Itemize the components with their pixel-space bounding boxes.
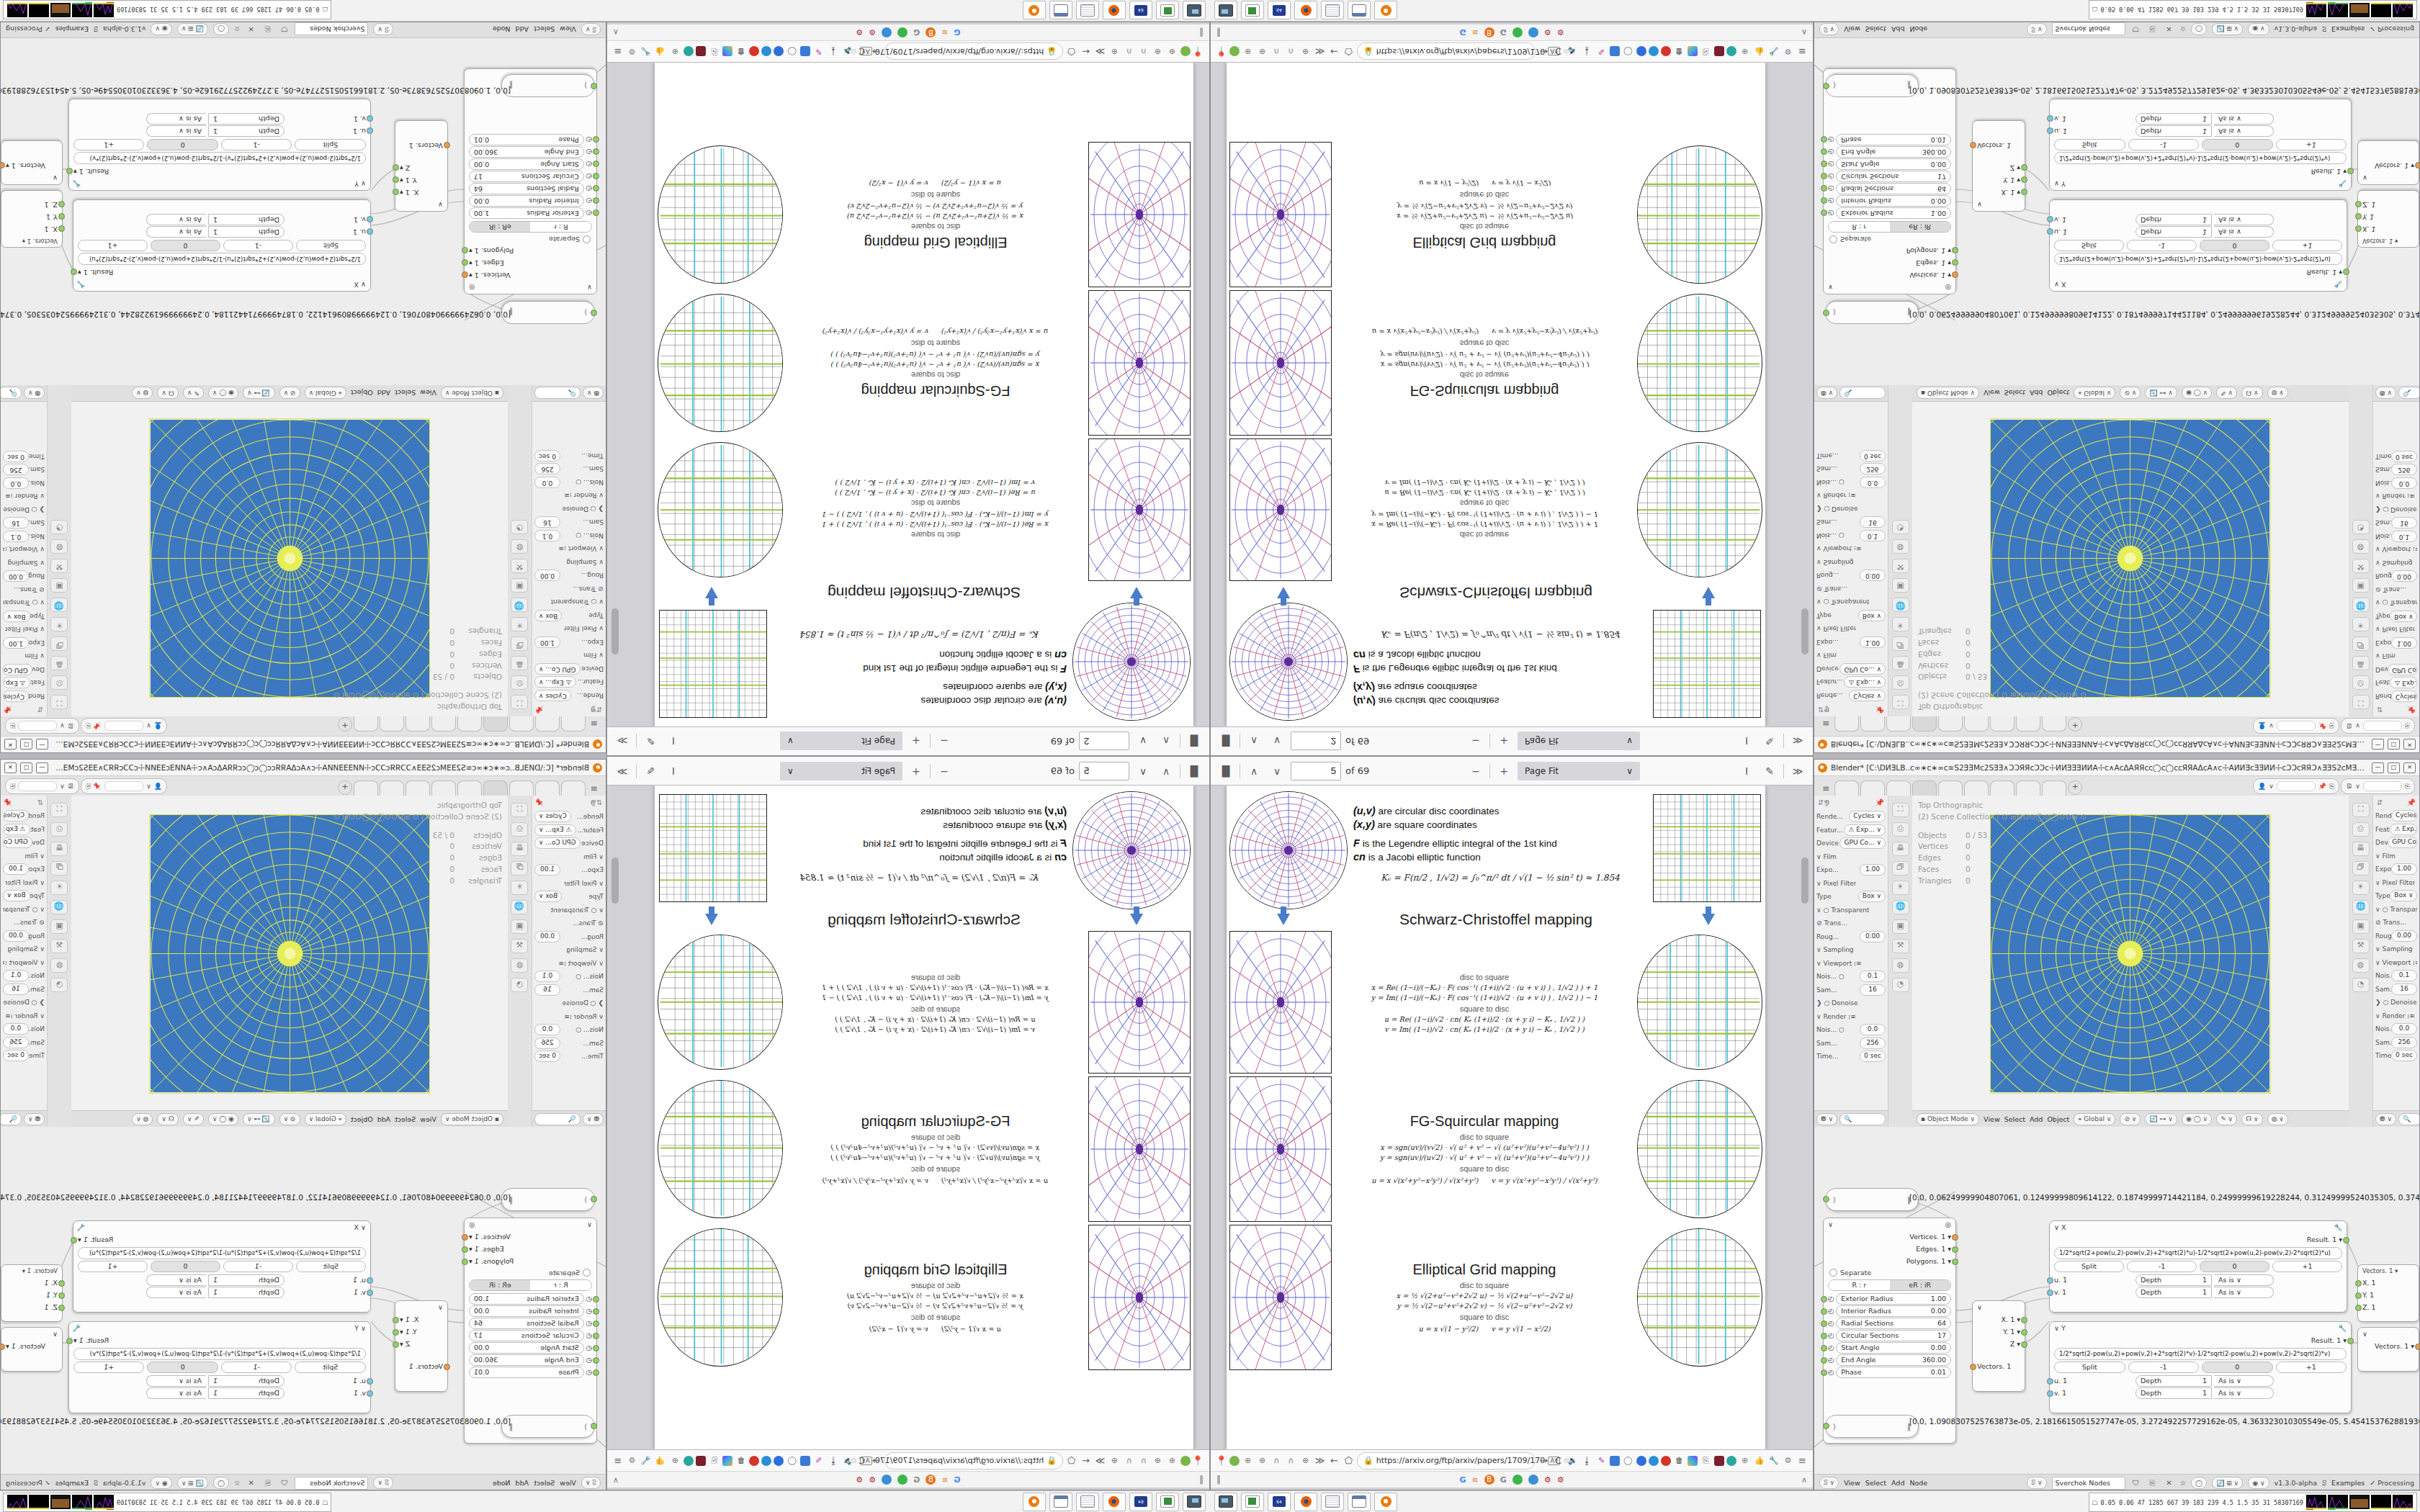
blender-titlebar[interactable]: Blender* [C:\DИƎLB..ᴄ∞∗ᴄ∗∞ᴄ≊S2ƎƎMᴄ2SƎƎ∧Ɔ… bbox=[1, 736, 606, 752]
prop-row[interactable]: Sam...256 bbox=[1, 1036, 47, 1050]
node-input-row[interactable]: v. 1Depth1As is ∨ bbox=[2050, 113, 2351, 125]
prop-row[interactable]: ∨ Pixel Filter bbox=[532, 877, 606, 891]
prop-row[interactable]: Roug...0.00 bbox=[2373, 930, 2419, 943]
prop-row[interactable]: Featur...⚠ Exp... ∨ bbox=[532, 675, 606, 689]
node-row[interactable]: Y. 1 ▾ bbox=[395, 1326, 447, 1338]
snap-toggle[interactable]: ◯ bbox=[213, 1477, 229, 1489]
viewlayer-selector[interactable]: 🖻∨⎘ bbox=[2341, 778, 2415, 794]
prop-row[interactable]: ∨ Viewport ⁝≡ bbox=[1, 543, 47, 557]
stethoscope-node-collapsed[interactable]: ⟩‖ bbox=[1825, 301, 1919, 324]
pin-icon[interactable]: 📌 bbox=[94, 783, 102, 790]
separate-radio[interactable]: Separate bbox=[1824, 1267, 1955, 1278]
socket-green[interactable] bbox=[1821, 1369, 1827, 1376]
tab-tool-icon[interactable]: ⛶ bbox=[511, 803, 529, 817]
viewlayer-selector[interactable]: 🖻∨⎘ bbox=[2341, 718, 2415, 734]
tab-output-icon[interactable]: 🖶 bbox=[51, 656, 68, 670]
tab-viewlayer-icon[interactable]: 🗇 bbox=[1892, 636, 1909, 651]
prop-row[interactable]: ∨ Render ⁝≡ bbox=[1814, 489, 1888, 503]
vector-out-node[interactable]: Vectors. 1 ▾ X. 1 Y. 1 Z. 1 bbox=[1, 1264, 63, 1322]
formula-node-y[interactable]: ∨ Y🔧 Result. 1 ▾ 1/2*sqrt(2-pow(u,2)+pow… bbox=[68, 99, 371, 191]
prop-row[interactable]: ∨ Pixel Filter bbox=[2373, 876, 2419, 890]
tab-material-icon[interactable]: ◔ bbox=[511, 978, 529, 992]
node-row[interactable]: X. 1 ▾ bbox=[1973, 186, 2025, 199]
tab-modifier-icon[interactable]: ⚒ bbox=[2352, 939, 2370, 953]
node-row[interactable]: Z. 1 bbox=[1, 199, 62, 211]
prop-row[interactable]: Time...0 sec bbox=[532, 1050, 606, 1063]
pdf-scrollbar-thumb[interactable] bbox=[611, 608, 619, 654]
node-input-row[interactable]: u. 1Depth1As is ∨ bbox=[2050, 1274, 2347, 1286]
mode-select[interactable]: ▪ Object Mode ∨ bbox=[441, 387, 503, 400]
socket-green[interactable] bbox=[1821, 197, 1827, 204]
circle-ext-icon[interactable]: ◯ bbox=[786, 45, 798, 58]
prop-row[interactable]: Featur...⚠ Exp... ∨ bbox=[1814, 675, 1888, 689]
overlays-toggle[interactable]: ☊ ∨ bbox=[2241, 1113, 2262, 1125]
overlays-toggle[interactable]: ◉ ∨ bbox=[2248, 1477, 2269, 1489]
globe-icon[interactable]: ⊕ bbox=[669, 1454, 681, 1467]
sverchok-node-editor[interactable]: ⟩‖ [0.0, 0.06249999904807061, 0.12499999… bbox=[1814, 1127, 2419, 1474]
prop-row[interactable]: TypeBox ∨ bbox=[1, 610, 47, 624]
workspace-tab[interactable] bbox=[1886, 716, 1911, 732]
thumbs-up-icon[interactable]: 👍 bbox=[1753, 45, 1765, 58]
prop-row[interactable]: TypeBox ∨ bbox=[1814, 609, 1888, 623]
socket-green[interactable] bbox=[58, 225, 65, 232]
formula-field[interactable]: 1/2*sqrt(2-pow(u,2)+pow(v,2)+2*sqrt(2)*v… bbox=[73, 1348, 366, 1360]
socket-green[interactable] bbox=[1823, 1423, 1829, 1429]
plus-ext-icon[interactable] bbox=[1636, 47, 1646, 57]
menu-select[interactable]: Select bbox=[395, 1115, 416, 1123]
bookmark-google-icon[interactable]: G bbox=[1459, 1475, 1466, 1485]
prop-row[interactable]: Nois... ○0.1 bbox=[2373, 969, 2419, 983]
node-field-row[interactable]: ◴Exterior Radius1.00 bbox=[1824, 1292, 1955, 1305]
tab-world-icon[interactable]: 🌐 bbox=[51, 900, 68, 914]
formula-field[interactable]: 1/2*sqrt(2+pow(u,2)-pow(v,2)+2*sqrt(2)*u… bbox=[78, 253, 366, 265]
socket-green[interactable] bbox=[593, 210, 599, 216]
menu-view[interactable]: View bbox=[420, 1115, 436, 1123]
workspace-tab[interactable] bbox=[380, 780, 404, 796]
blender-titlebar[interactable]: Blender* [C:\DИƎLB..ᴄ∞∗ᴄ∗∞ᴄ≊S2ƎƎMᴄ2SƎƎ∧Ɔ… bbox=[1, 760, 606, 776]
tab-scene-icon[interactable]: ☀ bbox=[2352, 617, 2370, 631]
node-row[interactable]: X. 1 bbox=[2358, 1277, 2419, 1289]
node-field-row[interactable]: ◴Radial Sections64 bbox=[1824, 1317, 1955, 1329]
settings-gear-icon[interactable]: ⚙ bbox=[1782, 1454, 1794, 1467]
sverchok-node-editor[interactable]: ⟩‖ [0.0, 0.06249999904807061, 0.12499999… bbox=[1, 38, 606, 385]
socket-green[interactable] bbox=[2021, 164, 2027, 171]
scene-selector[interactable]: 👤∨📌⎘ bbox=[81, 778, 167, 794]
vector-out-node[interactable]: Vectors. 1 ▾ X. 1 Y. 1 Z. 1 bbox=[2357, 190, 2419, 248]
draw-tool-icon[interactable]: ✎ bbox=[1760, 762, 1779, 780]
prop-row[interactable]: Sam...256 bbox=[1814, 462, 1888, 476]
prop-row[interactable]: Expo...1.00 bbox=[2373, 636, 2419, 650]
node-field-row[interactable]: ◴Interior Radius0.00 bbox=[465, 195, 596, 207]
copy-icon[interactable]: ⎘ bbox=[10, 783, 15, 791]
tab-render-icon[interactable]: ⎙ bbox=[2352, 675, 2370, 690]
proportional-edit-toggle[interactable]: 🔄 ⊶ ∨ bbox=[2145, 1113, 2177, 1125]
headset-icon[interactable]: ∩ bbox=[1137, 45, 1149, 58]
globe-icon[interactable]: ⊕ bbox=[1152, 45, 1164, 58]
socket-green[interactable] bbox=[1952, 1259, 1958, 1265]
add-workspace-button[interactable]: + bbox=[2068, 780, 2082, 795]
socket-green[interactable] bbox=[462, 1246, 468, 1253]
tab-data-icon[interactable]: ◍ bbox=[51, 958, 68, 973]
prop-row[interactable]: ⊘ Trans... bbox=[1, 583, 47, 597]
red-dot-ext-icon[interactable] bbox=[1661, 1456, 1671, 1466]
separate-radio[interactable]: Separate bbox=[465, 234, 596, 245]
node-row[interactable]: Y. 1 ▾ bbox=[1973, 1326, 2025, 1338]
shield-icon[interactable]: 🛡 bbox=[278, 24, 290, 35]
colorful-ext-icon[interactable] bbox=[1688, 47, 1698, 57]
tab-object-icon[interactable]: ▣ bbox=[2352, 919, 2370, 934]
tab-data-icon[interactable]: ◍ bbox=[511, 958, 529, 973]
wrench-icon[interactable]: 🔧 bbox=[73, 1324, 82, 1332]
socket-green[interactable] bbox=[1821, 1345, 1827, 1351]
socket-green[interactable] bbox=[58, 1292, 65, 1299]
bookmarks-left-grip[interactable]: ‖ bbox=[1199, 27, 1204, 37]
examples-menu[interactable]: Examples bbox=[55, 25, 89, 33]
text-select-tool-icon[interactable]: I bbox=[664, 732, 683, 751]
prop-row[interactable]: Expo...1.00 bbox=[1, 863, 47, 876]
node-input-row[interactable]: v. 1Depth1As is ∨ bbox=[2050, 1387, 2351, 1399]
page-up-icon[interactable]: ∧ bbox=[1157, 732, 1175, 751]
reload-icon[interactable]: C bbox=[856, 1454, 868, 1467]
socket-green[interactable] bbox=[593, 1296, 599, 1302]
tab-viewlayer-icon[interactable]: 🗇 bbox=[51, 636, 68, 651]
formula-node-x[interactable]: ∨ X🔧 Result. 1 ▾ 1/2*sqrt(2+pow(u,2)-pow… bbox=[2049, 1220, 2347, 1313]
tab-world-icon[interactable]: 🌐 bbox=[2352, 598, 2370, 612]
editor-type-button[interactable]: ꕶ ∨ bbox=[581, 23, 601, 35]
node-row[interactable]: Vectors. 1 ▾ bbox=[2358, 160, 2419, 172]
globe-icon[interactable]: ⊕ bbox=[1152, 1454, 1164, 1467]
hamburger-menu-icon[interactable]: ≡ bbox=[1819, 781, 1833, 796]
socket-green[interactable] bbox=[2021, 1341, 2027, 1348]
bookmarks-left-grip[interactable]: ‖ bbox=[1216, 27, 1221, 37]
proportional-edit-toggle[interactable]: 🔄 ⊶ ∨ bbox=[2145, 387, 2177, 400]
node-field-row[interactable]: ◴Phase0.01 bbox=[1824, 1366, 1955, 1378]
radius-mode-buttons[interactable]: R : reR : iR bbox=[1828, 221, 1951, 233]
prop-row[interactable]: DeviceGPU Co... ∨ bbox=[532, 837, 606, 850]
node-field-row[interactable]: ◴Radial Sections64 bbox=[465, 183, 596, 195]
tab-output-icon[interactable]: 🖶 bbox=[1892, 842, 1909, 856]
socket-green[interactable] bbox=[593, 173, 599, 179]
separate-radio[interactable]: Separate bbox=[465, 1267, 596, 1278]
prop-row[interactable]: Nois... ○0.0 bbox=[1814, 476, 1888, 490]
radius-mode-buttons[interactable]: R : reR : iR bbox=[469, 221, 592, 233]
menu-node[interactable]: Node bbox=[1909, 25, 1927, 33]
copy-icon[interactable]: ⎘ bbox=[2405, 722, 2410, 730]
bookmark-smiley-icon[interactable] bbox=[1512, 27, 1523, 37]
workspace-tab[interactable] bbox=[1860, 780, 1885, 796]
socket-green[interactable] bbox=[1821, 1357, 1827, 1364]
socket-orange[interactable] bbox=[462, 271, 468, 278]
node-output-row[interactable]: Edges. 1 ▾ bbox=[1824, 257, 1955, 269]
socket-orange[interactable] bbox=[462, 1234, 468, 1241]
zoom-select[interactable]: Page Fit∨ bbox=[1518, 762, 1640, 780]
menu-add[interactable]: Add bbox=[1891, 1479, 1904, 1487]
tab-material-icon[interactable]: ◔ bbox=[511, 520, 529, 534]
prop-row[interactable]: ∨ Film bbox=[532, 649, 606, 662]
prop-row[interactable]: ∨ ○ Transparent bbox=[1, 596, 47, 610]
menu-object[interactable]: Object bbox=[351, 390, 373, 397]
node-input-row[interactable]: v. 1Depth1As is ∨ bbox=[69, 1387, 370, 1399]
node-field-row[interactable]: ◴Exterior Radius1.00 bbox=[465, 1292, 596, 1305]
pdf-scrollbar-thumb[interactable] bbox=[1801, 858, 1809, 904]
viewlayer-selector[interactable]: 🖻∨⎘ bbox=[5, 718, 79, 734]
tab-tool-icon[interactable]: ⛶ bbox=[1892, 695, 1909, 709]
prop-row[interactable]: ∨ Viewport ⁝≡ bbox=[532, 957, 606, 971]
socket-orange[interactable] bbox=[1, 162, 5, 168]
toolbar-more-icon[interactable]: ≫ bbox=[613, 762, 632, 780]
annotate-tool[interactable]: ✎ ∨ bbox=[2216, 1113, 2237, 1125]
node-field-row[interactable]: ◴Phase0.01 bbox=[465, 1366, 596, 1378]
prop-row[interactable]: ⊘ Trans... bbox=[2373, 916, 2419, 930]
bookmarks-collapse-icon[interactable]: ∧ bbox=[613, 28, 619, 37]
prop-row[interactable]: TypeBox ∨ bbox=[2373, 889, 2419, 903]
shield-down-icon[interactable] bbox=[761, 1456, 771, 1466]
node-field-row[interactable]: ◴Start Angle0.00 bbox=[1824, 1341, 1955, 1354]
editor-type-button[interactable]: ⛃ ∨ bbox=[583, 387, 604, 400]
node-output-row[interactable]: Polygons. 1 ▾ bbox=[465, 1255, 596, 1267]
blender-titlebar[interactable]: Blender* [C:\DИƎLB..ᴄ∞∗ᴄ∗∞ᴄ≊S2ƎƎMᴄ2SƎƎ∧Ɔ… bbox=[1814, 760, 2419, 776]
socket-green[interactable] bbox=[2021, 176, 2027, 183]
globe-icon[interactable]: ⊕ bbox=[1108, 45, 1121, 58]
prop-row[interactable]: Featur...⚠ Exp... ∨ bbox=[1814, 824, 1888, 837]
tab-output-icon[interactable]: 🖶 bbox=[2352, 656, 2370, 670]
node-output-row[interactable]: Result. 1 ▾ bbox=[2050, 1233, 2347, 1246]
ud-badge-icon[interactable] bbox=[696, 1456, 706, 1466]
pdf-scrollbar-thumb[interactable] bbox=[1801, 608, 1809, 654]
overlays-toggle[interactable]: ◉ ∨ bbox=[2248, 23, 2269, 35]
prop-row[interactable]: DeviceGPU Co... ∨ bbox=[1, 663, 47, 677]
wrench-icon[interactable]: 🔧 bbox=[2338, 1324, 2347, 1332]
workspace-tab-active[interactable] bbox=[483, 716, 508, 732]
node-row[interactable]: Vectors. 1 ▾ bbox=[1, 1340, 62, 1352]
prop-row[interactable]: Nois... ○0.0 bbox=[1, 1022, 47, 1036]
socket-orange[interactable] bbox=[1952, 1234, 1958, 1241]
separate-radio[interactable]: Separate bbox=[1824, 234, 1955, 245]
socket-green[interactable] bbox=[591, 1423, 597, 1429]
menu-select[interactable]: Select bbox=[2004, 1115, 2025, 1123]
node-output-row[interactable]: Edges. 1 ▾ bbox=[1824, 1243, 1955, 1255]
prop-row[interactable]: ∨ Pixel Filter bbox=[1814, 877, 1888, 891]
socket-orange[interactable] bbox=[1970, 142, 1976, 148]
ud-badge-icon[interactable] bbox=[1714, 47, 1724, 57]
globe-icon[interactable]: ⊕ bbox=[1166, 45, 1178, 58]
annotate-tool[interactable]: ✎ ∨ bbox=[183, 387, 204, 400]
node-row[interactable]: X. 1 bbox=[1, 223, 62, 235]
tab-scene-icon[interactable]: ☀ bbox=[2352, 881, 2370, 895]
socket-cyan[interactable] bbox=[2047, 115, 2053, 122]
node-field-row[interactable]: ◴End Angle360.00 bbox=[465, 1354, 596, 1366]
workspace-tab[interactable] bbox=[431, 780, 456, 796]
taskbar-window-app-icon[interactable] bbox=[1348, 1, 1371, 20]
scene-name-field[interactable] bbox=[2277, 781, 2316, 791]
node-row[interactable]: Z ▾ bbox=[1973, 1338, 2025, 1350]
url-bar[interactable]: 🔒 https://arxiv.org/ftp/arxiv/papers/170… bbox=[884, 1452, 1063, 1470]
plus-ext-icon[interactable] bbox=[1636, 1456, 1646, 1466]
close-button[interactable]: ✕ bbox=[4, 762, 17, 773]
socket-green[interactable] bbox=[2347, 1338, 2354, 1344]
node-row[interactable]: Vectors. 1 bbox=[1973, 1360, 2025, 1372]
socket-green[interactable] bbox=[393, 189, 399, 195]
socket-green[interactable] bbox=[71, 269, 77, 275]
zoom-in-icon[interactable]: + bbox=[1494, 732, 1513, 751]
node-output-row[interactable]: Vertices. 1 ▾ bbox=[1824, 269, 1955, 282]
headset-icon[interactable]: ∩ bbox=[1285, 1454, 1297, 1467]
socket-green[interactable] bbox=[591, 83, 597, 89]
headset-icon[interactable]: ∩ bbox=[1123, 45, 1135, 58]
clipboard-icon[interactable]: ⎘ bbox=[708, 1454, 720, 1467]
socket-green[interactable] bbox=[2021, 1329, 2027, 1336]
bookmark-blogger-icon[interactable]: B bbox=[926, 27, 936, 37]
bookmark-stack-icon[interactable]: ≋ bbox=[941, 28, 948, 37]
menu-select[interactable]: Select bbox=[1865, 1479, 1886, 1487]
thumbs-up-icon[interactable]: 👍 bbox=[1753, 1454, 1765, 1467]
globe-icon[interactable]: ⊕ bbox=[1739, 1454, 1751, 1467]
toolbar-more-icon[interactable]: ≫ bbox=[1788, 732, 1807, 751]
blender-titlebar[interactable]: Blender* [C:\DИƎLB..ᴄ∞∗ᴄ∗∞ᴄ≊S2ƎƎMᴄ2SƎƎ∧Ɔ… bbox=[1814, 736, 2419, 752]
node-output-row[interactable]: Result. 1 ▾ bbox=[2050, 266, 2347, 279]
red-dot-ext-icon[interactable] bbox=[749, 1456, 759, 1466]
prop-row[interactable]: Roug...0.00 bbox=[1814, 930, 1888, 944]
settings-gear-icon[interactable]: ⚙ bbox=[626, 45, 638, 58]
socket-green[interactable] bbox=[1821, 173, 1827, 179]
tab-object-icon[interactable]: ▣ bbox=[1892, 578, 1909, 593]
close-button[interactable]: ✕ bbox=[2403, 739, 2416, 750]
bookmark-stack-icon[interactable]: ≋ bbox=[1472, 1475, 1479, 1485]
tab-modifier-icon[interactable]: ⚒ bbox=[1892, 559, 1909, 573]
mode-select[interactable]: ▪ Object Mode ∨ bbox=[1917, 1113, 1979, 1125]
formula-buttons[interactable]: Split-10+1 bbox=[73, 1362, 366, 1373]
extension-green-icon[interactable] bbox=[1229, 47, 1240, 57]
workspace-tab[interactable] bbox=[1860, 716, 1885, 732]
pin-icon[interactable]: 📍 bbox=[1215, 45, 1227, 58]
socket-green[interactable] bbox=[66, 168, 73, 174]
page-number-input[interactable] bbox=[1079, 732, 1129, 751]
taskbar-card-app-icon[interactable] bbox=[1241, 1, 1264, 20]
trash-icon[interactable]: 🗑 bbox=[735, 1454, 747, 1467]
zoom-select[interactable]: Page Fit∨ bbox=[780, 732, 902, 751]
tab-tool-icon[interactable]: ⛶ bbox=[1892, 803, 1909, 817]
node-field-row[interactable]: ◴Start Angle0.00 bbox=[1824, 158, 1955, 171]
prop-row[interactable]: Sam...256 bbox=[2373, 1036, 2419, 1050]
search-field[interactable]: 🔍 bbox=[0, 387, 22, 400]
taskbar-screenshot-app-icon[interactable] bbox=[1183, 1, 1206, 20]
prop-row[interactable]: ∨ Viewport ⁝≡ bbox=[1814, 542, 1888, 556]
socket-green[interactable] bbox=[1952, 1246, 1958, 1253]
tab-data-icon[interactable]: ◍ bbox=[1892, 958, 1909, 973]
overlays-toggle[interactable]: ◉ ∨ bbox=[151, 1477, 171, 1489]
forward-icon[interactable]: → bbox=[870, 1454, 882, 1467]
prop-row[interactable]: TypeBox ∨ bbox=[532, 890, 606, 904]
node-field-row[interactable]: ◴Circular Sections17 bbox=[1824, 1329, 1955, 1341]
wrench-icon[interactable]: 🔧 bbox=[78, 1223, 86, 1231]
wrench-icon[interactable]: 🔧 bbox=[640, 45, 653, 58]
workspace-tab[interactable] bbox=[457, 780, 482, 796]
workspace-tab[interactable] bbox=[380, 716, 404, 732]
menu-view[interactable]: View bbox=[560, 25, 576, 33]
tab-tool-icon[interactable]: ⛶ bbox=[2352, 695, 2370, 709]
bookmark-stack-icon[interactable]: ≋ bbox=[1472, 28, 1479, 37]
taskbar-notepad-icon[interactable] bbox=[1076, 1, 1099, 20]
clock-icon[interactable] bbox=[684, 47, 694, 57]
bookmark-gear-icon[interactable]: ⚙ bbox=[1544, 28, 1551, 37]
formula-field[interactable]: 1/2*sqrt(2-pow(u,2)+pow(v,2)+2*sqrt(2)*v… bbox=[2054, 1348, 2347, 1360]
overflow-chevron-icon[interactable]: ≫ bbox=[1314, 45, 1326, 58]
bookmark-gear-icon[interactable]: ⚙ bbox=[1557, 28, 1564, 37]
vector-in-node[interactable]: ∨ X. 1 ▾ Y. 1 ▾ Z ▾ Vectors. 1 bbox=[1972, 1300, 2025, 1392]
prop-row[interactable]: Roug...0.00 bbox=[1, 570, 47, 583]
highlighter-icon[interactable]: ✎ bbox=[1595, 45, 1608, 58]
node-field-row[interactable]: ◴Exterior Radius1.00 bbox=[1824, 207, 1955, 220]
bookmark-gear-icon[interactable]: ⚙ bbox=[856, 1475, 863, 1485]
tab-scene-icon[interactable]: ☀ bbox=[51, 617, 68, 631]
tab-render-icon[interactable]: ⎙ bbox=[51, 822, 68, 837]
menu-view[interactable]: View bbox=[1984, 1115, 2000, 1123]
plus-ext-icon[interactable] bbox=[774, 1456, 784, 1466]
forward-icon[interactable]: → bbox=[1538, 45, 1550, 58]
overlays-toggle[interactable]: ☊ ∨ bbox=[2241, 387, 2262, 400]
menu-object[interactable]: Object bbox=[2047, 390, 2069, 397]
socket-green[interactable] bbox=[462, 259, 468, 266]
copy-icon[interactable]: ⎘ bbox=[261, 24, 273, 35]
snap-toggle[interactable]: ◯ bbox=[2191, 1477, 2207, 1489]
bookmark-smiley-icon[interactable] bbox=[897, 1475, 907, 1485]
page-down-icon[interactable]: ∨ bbox=[1134, 762, 1152, 780]
overlays-toggle[interactable]: ☊ ∨ bbox=[157, 1113, 178, 1125]
workspace-tab[interactable] bbox=[2016, 780, 2040, 796]
prop-row[interactable]: TypeBox ∨ bbox=[1814, 890, 1888, 904]
prop-row[interactable]: Expo...1.00 bbox=[1814, 636, 1888, 649]
prop-row[interactable]: DeviceGPU Co... ∨ bbox=[2373, 836, 2419, 850]
clock-icon[interactable] bbox=[1726, 47, 1736, 57]
node-row[interactable]: Y. 1 bbox=[2358, 1289, 2419, 1301]
prop-row[interactable]: Time...0 sec bbox=[2373, 450, 2419, 464]
prop-row[interactable]: DeviceGPU Co... ∨ bbox=[1, 836, 47, 850]
prop-row[interactable]: Featur...⚠ Exp... ∨ bbox=[532, 824, 606, 837]
unlink-icon[interactable]: ✕ bbox=[2164, 1477, 2175, 1489]
taskbar-floppy64-icon[interactable]: 64 bbox=[1129, 1, 1152, 20]
zoom-out-icon[interactable]: − bbox=[935, 732, 954, 751]
examples-menu[interactable]: Examples bbox=[2331, 1479, 2365, 1487]
editor-type-button[interactable]: ⛃ ∨ bbox=[24, 1113, 45, 1125]
bookmark-stack-icon[interactable]: ≋ bbox=[941, 1475, 948, 1485]
shield-icon[interactable]: 🛡 bbox=[278, 1477, 290, 1489]
prop-row[interactable]: ∨ Render ⁝≡ bbox=[532, 1010, 606, 1024]
back-icon[interactable]: ← bbox=[1080, 1454, 1092, 1467]
download-icon[interactable]: ⭳ bbox=[1581, 45, 1593, 58]
scene-selector[interactable]: 👤∨📌⎘ bbox=[2253, 718, 2339, 734]
socket-orange[interactable] bbox=[1, 1344, 5, 1350]
tab-viewlayer-icon[interactable]: 🗇 bbox=[2352, 861, 2370, 876]
annotate-tool[interactable]: ✎ ∨ bbox=[2216, 387, 2237, 400]
wrench-icon[interactable]: 🔧 bbox=[2334, 1223, 2342, 1231]
bookmark-smiley-icon[interactable] bbox=[1512, 1475, 1523, 1485]
prop-row[interactable]: Roug...0.00 bbox=[532, 930, 606, 944]
prop-row[interactable]: Nois... ○0.1 bbox=[2373, 530, 2419, 544]
menu-icon[interactable]: ≡ bbox=[1796, 1454, 1809, 1467]
back-icon[interactable]: ← bbox=[1328, 1454, 1340, 1467]
tab-material-icon[interactable]: ◔ bbox=[2352, 520, 2370, 534]
prop-row[interactable]: Roug...0.00 bbox=[1, 930, 47, 943]
prop-row[interactable]: ∨ Film bbox=[1, 850, 47, 863]
tab-world-icon[interactable]: 🌐 bbox=[1892, 598, 1909, 612]
sverchok-node-editor[interactable]: ⟩‖ [0.0, 0.06249999904807061, 0.12499999… bbox=[1, 1127, 606, 1474]
node-row[interactable]: X. 1 bbox=[1, 1277, 62, 1289]
socket-cyan[interactable] bbox=[2047, 228, 2053, 235]
taskbar-floppy64-icon[interactable]: 64 bbox=[1129, 1493, 1152, 1511]
prop-row[interactable]: Sam...256 bbox=[1814, 1037, 1888, 1050]
circle-node[interactable]: ∨◎ Vertices. 1 ▾ Edges. 1 ▾ Polygons. 1 … bbox=[1823, 1218, 1956, 1444]
shield-icon[interactable]: 🛡 bbox=[2130, 1477, 2142, 1489]
